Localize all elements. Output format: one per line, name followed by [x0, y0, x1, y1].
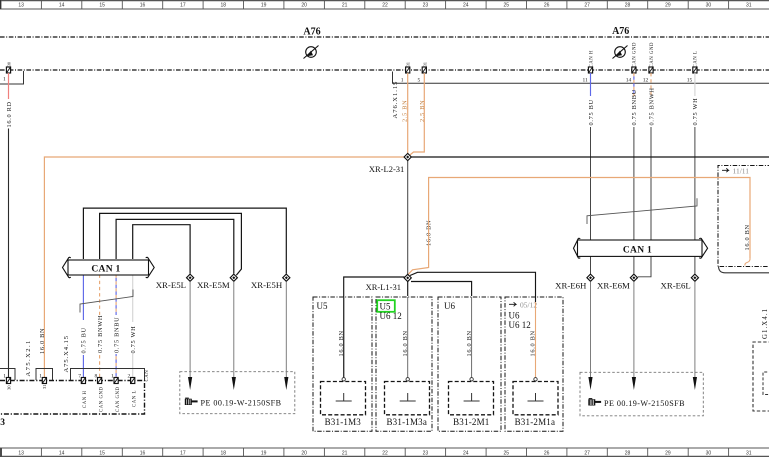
svg-text:21: 21	[342, 451, 348, 457]
svg-text:18: 18	[221, 451, 227, 457]
svg-text:29: 29	[665, 2, 671, 8]
svg-text:31: 31	[746, 451, 752, 457]
svg-text:26: 26	[544, 451, 550, 457]
svg-text:15: 15	[99, 451, 105, 457]
svg-text:31: 31	[746, 2, 752, 8]
svg-text:13: 13	[18, 451, 24, 457]
svg-text:B31-1M3a: B31-1M3a	[386, 417, 427, 427]
svg-text:28: 28	[625, 2, 631, 8]
svg-text:CAN GND: CAN GND	[633, 42, 638, 68]
svg-text:19: 19	[261, 451, 267, 457]
svg-text:U6: U6	[509, 310, 520, 320]
svg-text:XR-E5L: XR-E5L	[156, 280, 186, 290]
svg-text:18: 18	[221, 2, 227, 8]
svg-text:14: 14	[626, 77, 632, 83]
svg-text:U6: U6	[444, 301, 455, 311]
svg-text:25: 25	[504, 2, 510, 8]
svg-text:30: 30	[6, 385, 11, 390]
svg-text:8: 8	[94, 374, 97, 380]
svg-text:13: 13	[18, 2, 24, 8]
svg-text:XR-E6L: XR-E6L	[661, 281, 691, 291]
svg-text:22: 22	[382, 2, 388, 8]
svg-text:24: 24	[463, 451, 469, 457]
svg-text:B31-2M1a: B31-2M1a	[515, 417, 556, 427]
svg-text:0.75 WH: 0.75 WH	[130, 326, 137, 354]
svg-text:CAN GND: CAN GND	[116, 386, 121, 412]
svg-text:1: 1	[3, 76, 6, 82]
svg-text:16.0 BN: 16.0 BN	[338, 330, 345, 356]
svg-text:30: 30	[6, 61, 11, 66]
svg-text:XR-E5H: XR-E5H	[251, 280, 283, 290]
svg-text:XR-E6M: XR-E6M	[597, 281, 630, 291]
svg-text:28: 28	[625, 451, 631, 457]
svg-text:A75.X4.15: A75.X4.15	[63, 335, 70, 372]
svg-text:05/12: 05/12	[520, 301, 537, 310]
svg-text:1: 1	[3, 374, 6, 380]
svg-text:CAN GND: CAN GND	[99, 386, 104, 412]
svg-text:0.75 BU: 0.75 BU	[81, 327, 88, 353]
svg-text:16.0 BN: 16.0 BN	[530, 330, 537, 356]
svg-text:A76: A76	[303, 26, 320, 37]
svg-text:U6 12: U6 12	[509, 320, 531, 330]
svg-text:XR-L1-31: XR-L1-31	[366, 282, 401, 292]
svg-text:A76.X1.15: A76.X1.15	[392, 81, 399, 119]
svg-text:0.75 WH: 0.75 WH	[692, 98, 699, 126]
svg-text:17: 17	[180, 451, 186, 457]
svg-text:22: 22	[382, 451, 388, 457]
svg-text:CAN H: CAN H	[83, 390, 88, 408]
svg-text:U5: U5	[380, 302, 391, 312]
svg-text:29: 29	[665, 451, 671, 457]
svg-text:31: 31	[406, 61, 411, 66]
svg-text:21: 21	[342, 2, 348, 8]
svg-text:XR-E5M: XR-E5M	[197, 280, 230, 290]
svg-text:0.75 BNWH: 0.75 BNWH	[97, 315, 104, 353]
svg-text:1: 1	[111, 374, 114, 380]
svg-text:15: 15	[687, 77, 693, 83]
svg-text:1: 1	[39, 374, 42, 380]
svg-text:PE 00.19-W-2150SFB: PE 00.19-W-2150SFB	[604, 399, 685, 408]
svg-text:23: 23	[423, 451, 429, 457]
svg-text:16.0 BN: 16.0 BN	[402, 330, 409, 356]
svg-text:U5: U5	[317, 301, 328, 311]
svg-text:0.75 BU: 0.75 BU	[588, 99, 595, 125]
svg-text:17: 17	[180, 2, 186, 8]
svg-text:16.0 RD: 16.0 RD	[6, 101, 13, 127]
svg-text:CAN 1: CAN 1	[91, 264, 120, 274]
svg-text:A76: A76	[612, 26, 629, 37]
svg-text:20: 20	[301, 451, 307, 457]
svg-text:G1.X4.1: G1.X4.1	[762, 308, 769, 339]
svg-text:11/11: 11/11	[733, 167, 750, 176]
svg-text:3: 3	[0, 418, 5, 428]
svg-text:0.75 BNBU: 0.75 BNBU	[113, 317, 120, 353]
svg-text:CAN L: CAN L	[132, 390, 137, 407]
svg-text:30: 30	[706, 451, 712, 457]
svg-text:31: 31	[422, 61, 427, 66]
svg-text:30: 30	[706, 2, 712, 8]
svg-text:5: 5	[418, 77, 421, 83]
svg-text:12: 12	[643, 77, 649, 83]
svg-text:16.0 BN: 16.0 BN	[39, 328, 46, 354]
svg-text:1: 1	[401, 77, 404, 83]
svg-text:24: 24	[463, 2, 469, 8]
svg-text:2.5 BN: 2.5 BN	[419, 100, 426, 122]
svg-text:CAN GND: CAN GND	[650, 42, 655, 68]
svg-text:16.0 BN: 16.0 BN	[466, 330, 473, 356]
svg-text:CAN 1: CAN 1	[623, 245, 652, 255]
svg-text:26: 26	[544, 2, 550, 8]
svg-text:7: 7	[78, 374, 81, 380]
svg-text:2.5 BN: 2.5 BN	[402, 100, 409, 122]
svg-text:25: 25	[504, 451, 510, 457]
svg-text:14: 14	[59, 2, 65, 8]
svg-text:CAN L: CAN L	[694, 50, 699, 67]
svg-text:23: 23	[423, 2, 429, 8]
svg-text:16.0 BN: 16.0 BN	[744, 224, 751, 250]
svg-text:XR-L2-31: XR-L2-31	[369, 164, 404, 174]
svg-text:27: 27	[584, 2, 590, 8]
svg-text:19: 19	[261, 2, 267, 8]
svg-text:16: 16	[140, 2, 146, 8]
svg-text:27: 27	[584, 451, 590, 457]
svg-text:PE 00.19-W-2150SFB: PE 00.19-W-2150SFB	[201, 398, 282, 407]
svg-text:20: 20	[301, 2, 307, 8]
svg-text:2: 2	[128, 374, 131, 380]
svg-text:B31-2M1: B31-2M1	[453, 417, 489, 427]
svg-text:XR-E6H: XR-E6H	[555, 281, 587, 291]
svg-text:0.75 BNBU: 0.75 BNBU	[631, 89, 638, 125]
svg-text:14: 14	[59, 451, 65, 457]
svg-text:15: 15	[99, 2, 105, 8]
svg-text:11: 11	[583, 77, 589, 83]
svg-text:B31-1M3: B31-1M3	[325, 417, 362, 427]
svg-text:31: 31	[42, 384, 47, 389]
svg-text:U6 12: U6 12	[380, 311, 402, 321]
svg-text:16: 16	[140, 451, 146, 457]
svg-text:0.75 BNWH: 0.75 BNWH	[648, 87, 655, 125]
svg-text:A75.X2.1: A75.X2.1	[25, 339, 32, 376]
svg-text:CAN: CAN	[145, 370, 150, 382]
svg-text:CAN H: CAN H	[589, 50, 594, 68]
